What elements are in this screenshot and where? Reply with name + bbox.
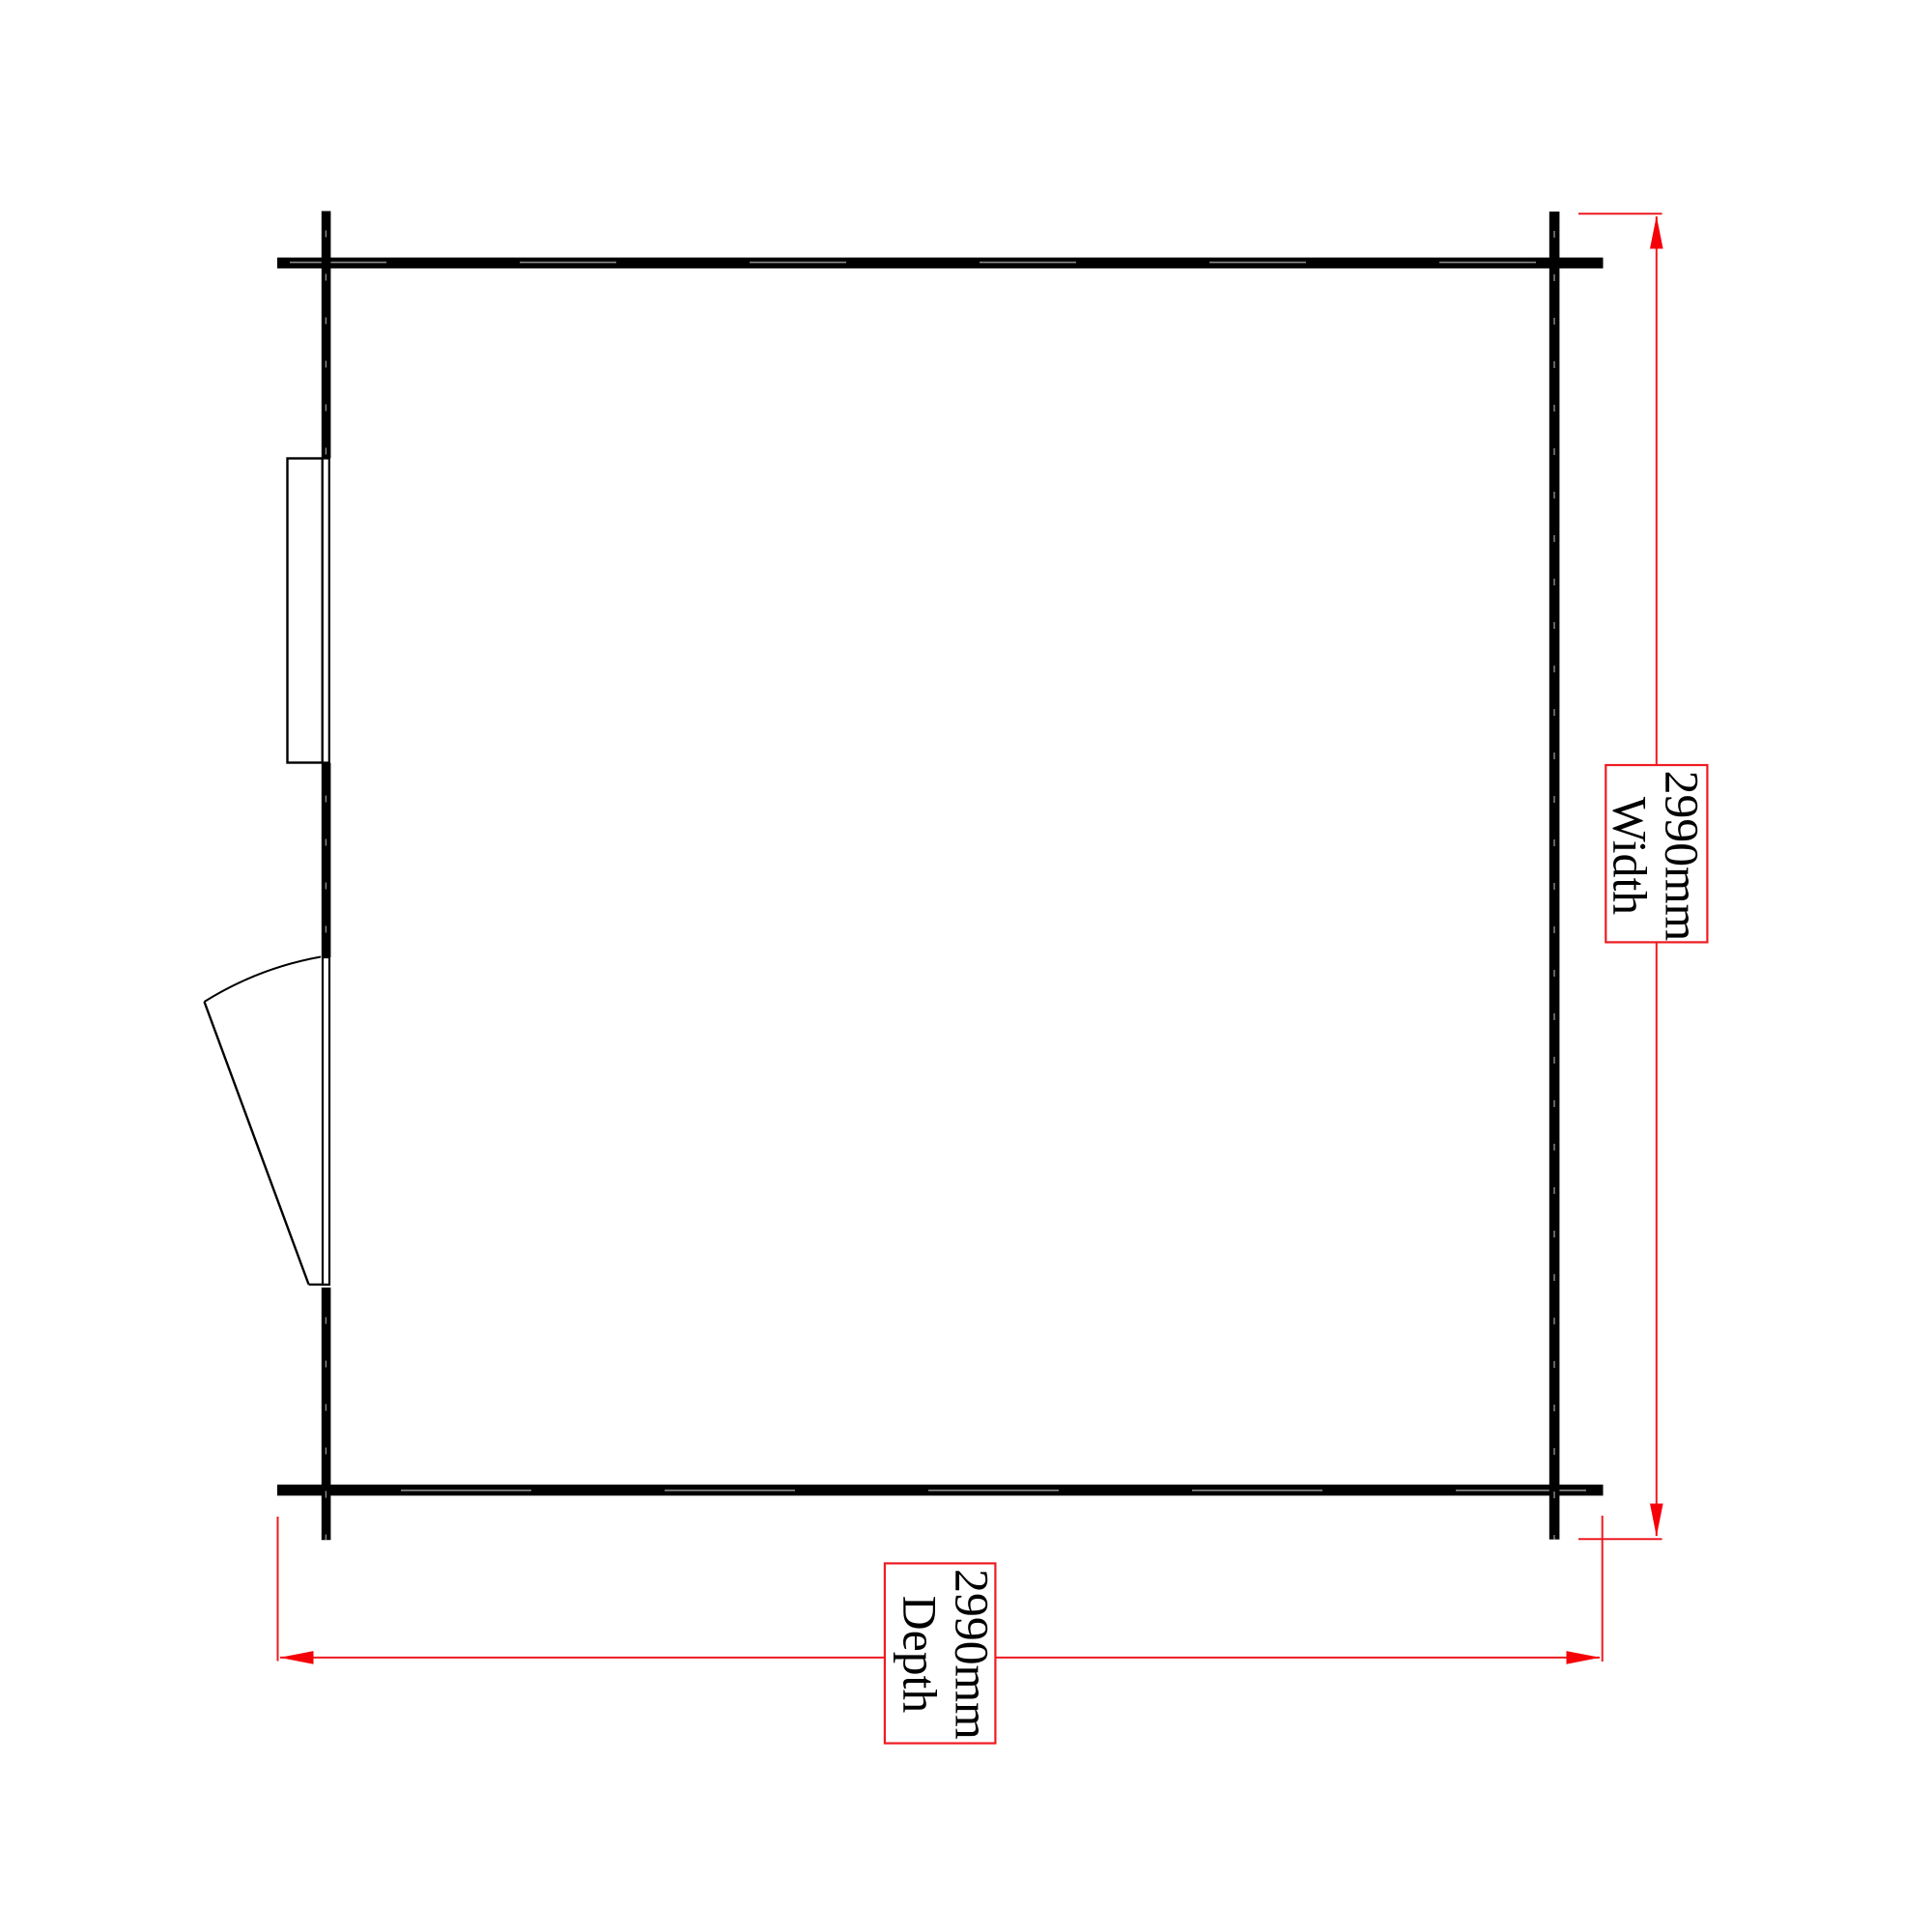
svg-text:2990mm: 2990mm [946, 1569, 999, 1740]
svg-text:Depth: Depth [894, 1596, 947, 1714]
svg-text:2990mm: 2990mm [1656, 771, 1709, 942]
svg-text:Width: Width [1604, 797, 1657, 915]
